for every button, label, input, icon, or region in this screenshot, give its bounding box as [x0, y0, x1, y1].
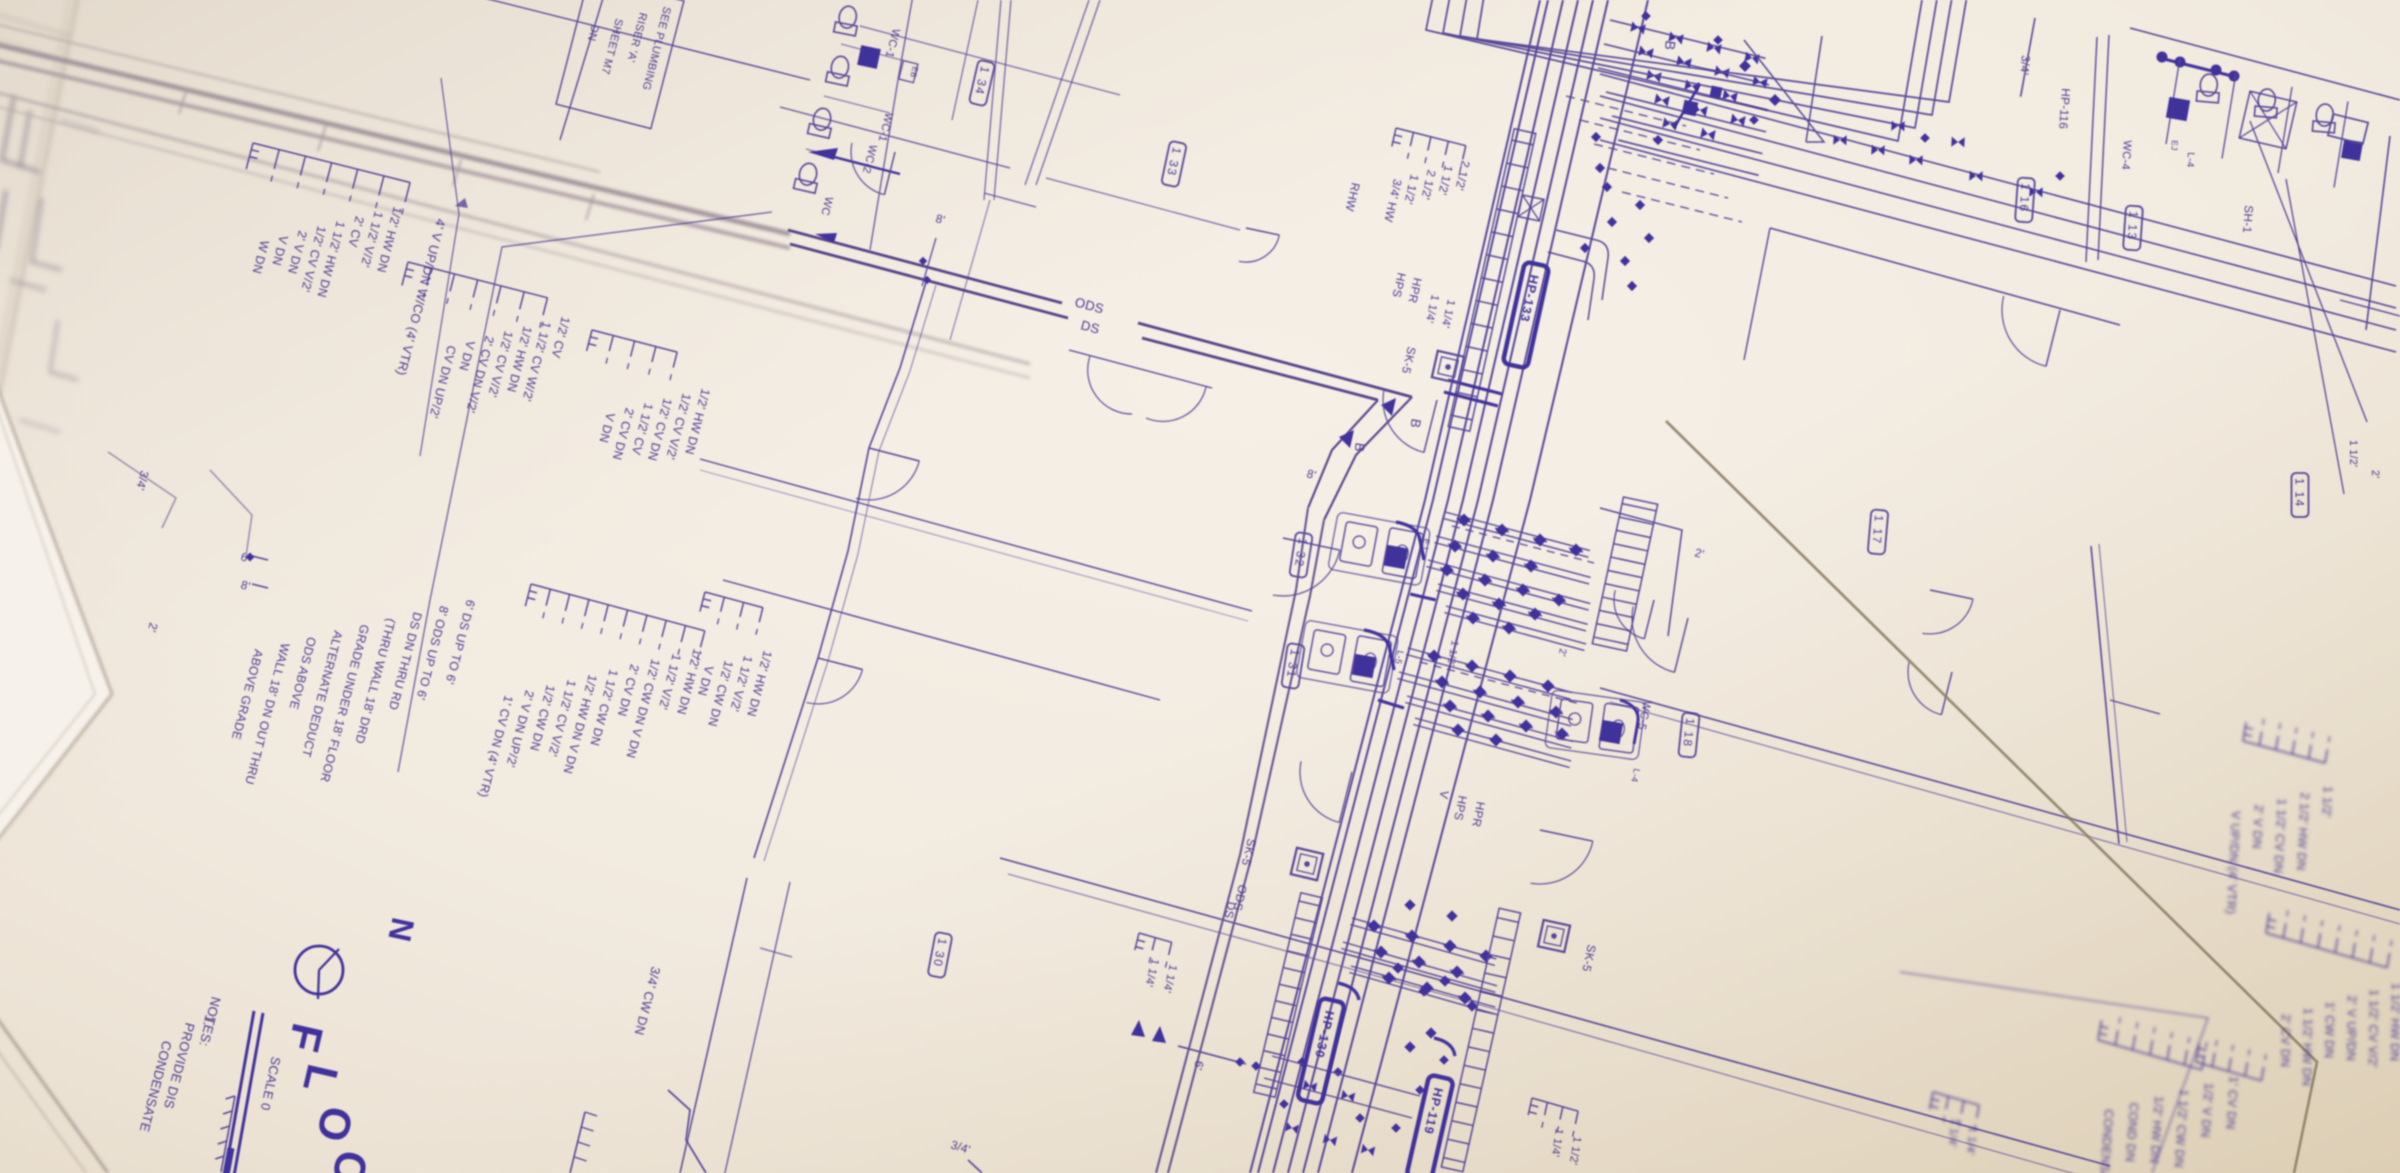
svg-text:1 1/2' HW DN: 1 1/2' HW DN: [2300, 1008, 2315, 1087]
svg-text:1 1/2' CV V/2': 1 1/2' CV V/2': [2366, 989, 2381, 1068]
svg-text:1 16: 1 16: [2017, 183, 2033, 214]
svg-text:1 13: 1 13: [2125, 211, 2141, 242]
svg-text:1' CW DN: 1' CW DN: [2322, 1002, 2337, 1059]
svg-text:WC-4: WC-4: [2119, 140, 2133, 171]
svg-text:2' V DN: 2' V DN: [2250, 804, 2266, 849]
svg-text:2': 2': [2369, 470, 2381, 479]
svg-text:L-4: L-4: [2184, 152, 2196, 168]
svg-text:1 14: 1 14: [2293, 478, 2307, 508]
svg-text:1 1/2': 1 1/2': [2319, 786, 2335, 818]
svg-text:SH-1: SH-1: [2240, 205, 2256, 234]
svg-text:1 1/2': 1 1/2': [2347, 440, 2359, 467]
svg-text:2' V UP/DN: 2' V UP/DN: [2344, 995, 2359, 1061]
svg-text:HP-116: HP-116: [2056, 88, 2073, 130]
svg-text:2' CV DN: 2' CV DN: [2278, 1014, 2293, 1068]
svg-text:1 1/2' HW DN: 1 1/2' HW DN: [2388, 983, 2400, 1062]
svg-text:EJ: EJ: [2169, 140, 2180, 151]
svg-text:1 17: 1 17: [1870, 514, 1887, 545]
